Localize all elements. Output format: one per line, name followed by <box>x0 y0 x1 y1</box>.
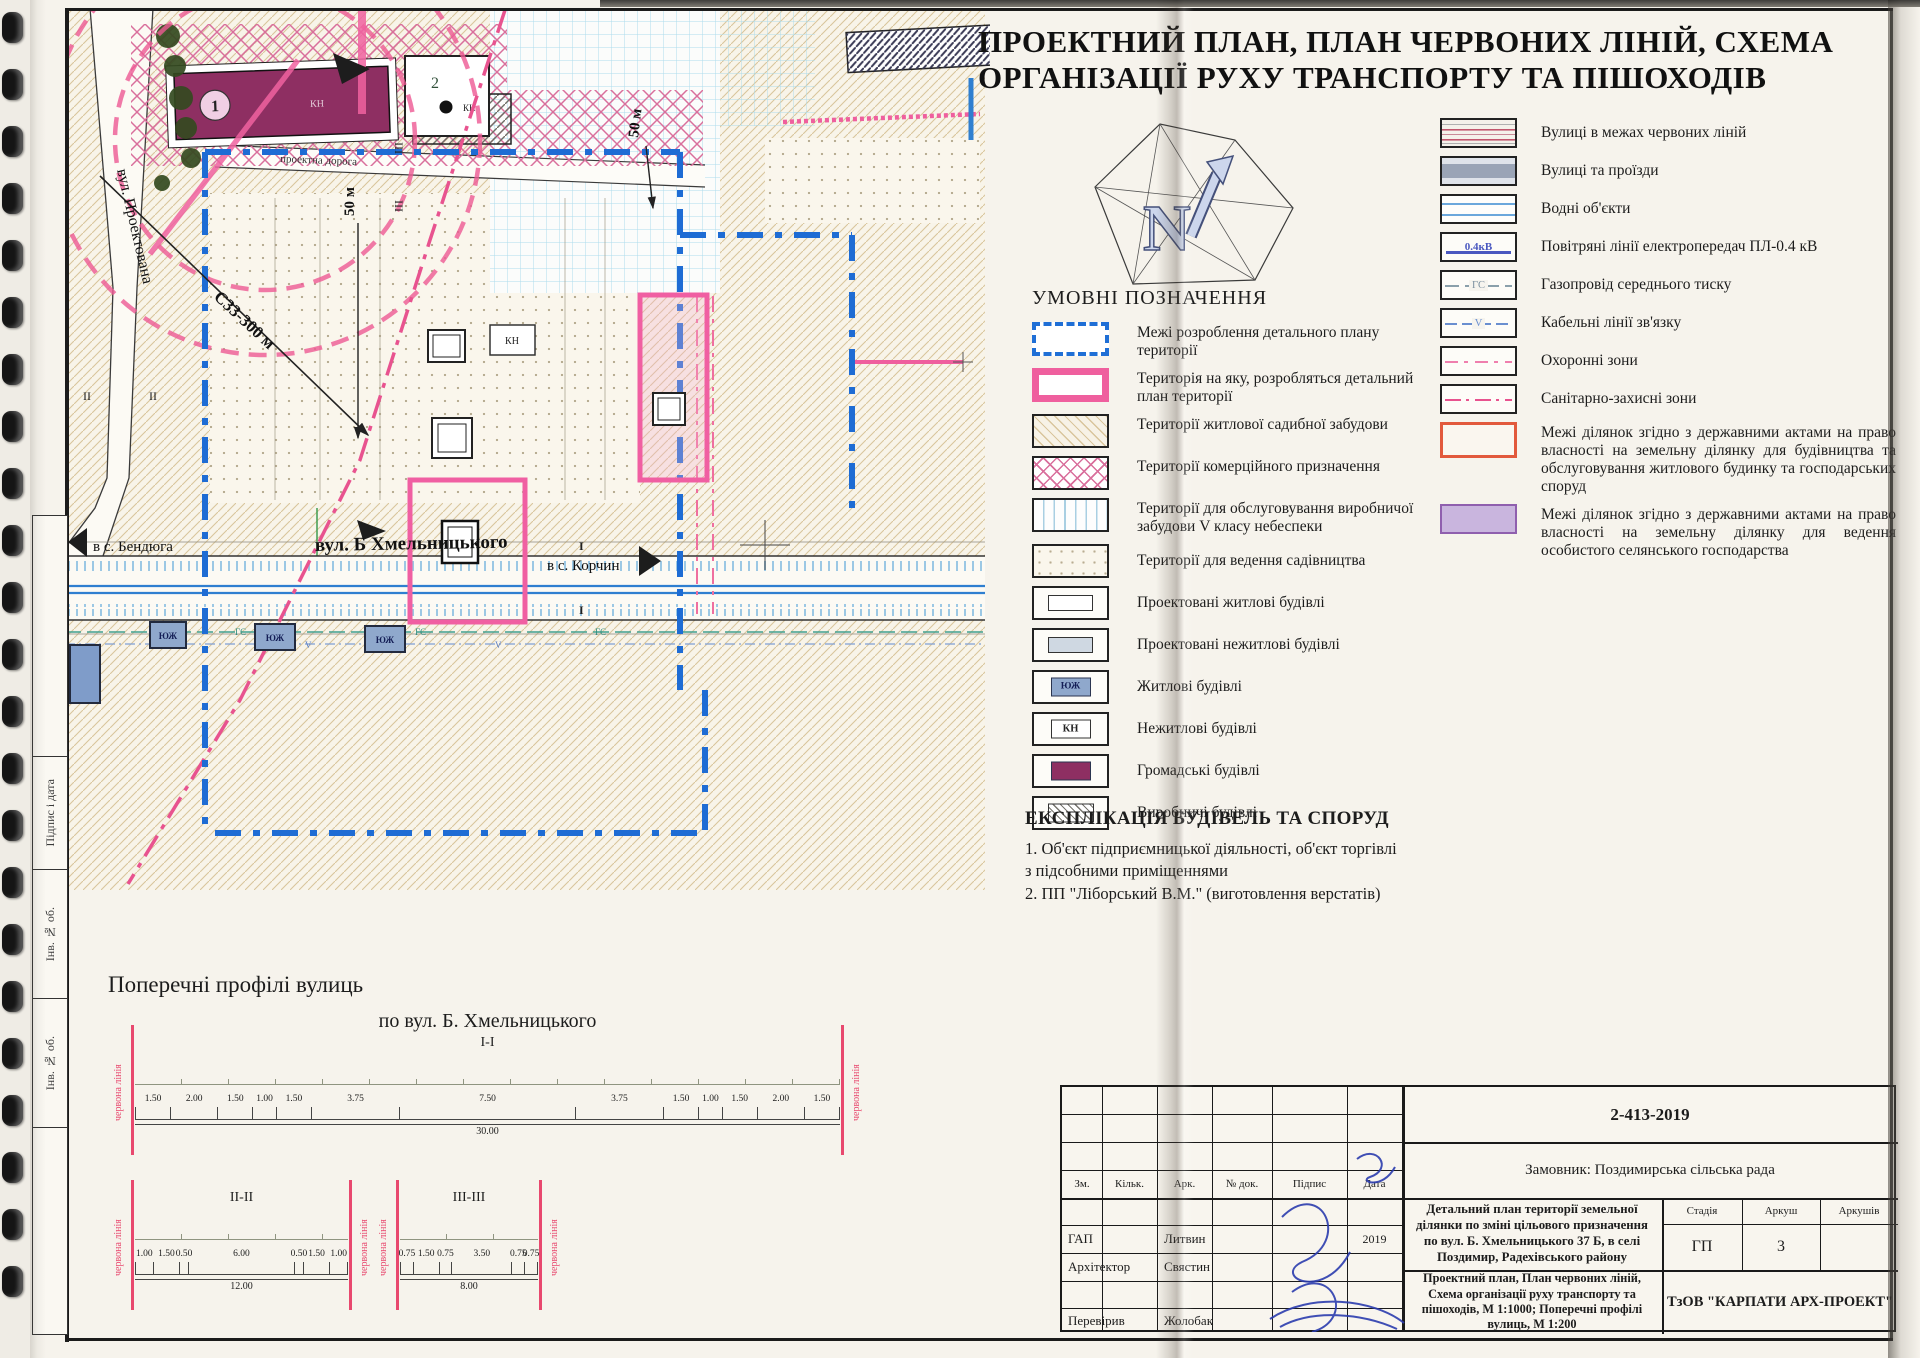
kn-building-label: КН <box>505 336 519 347</box>
water-swatch <box>1440 194 1517 224</box>
svg-text:III: III <box>392 142 406 154</box>
legend-item-nonresidential-buildings: КН Нежитлові будівлі <box>1032 712 1447 746</box>
spiral-loop <box>2 12 23 43</box>
red-line-mark <box>131 1025 134 1155</box>
red-line-mark <box>349 1180 352 1310</box>
spiral-loop <box>2 639 23 670</box>
legend-item-proposed-nonresidential: Проектовані нежитлові будівлі <box>1032 628 1447 662</box>
tb-sheets-value <box>1820 1224 1898 1270</box>
scanned-plan-sheet: { "colors": { "boundary_blue": "#1e6cd4"… <box>0 0 1920 1358</box>
residential-territory-swatch <box>1032 414 1109 448</box>
state-act-peasant-swatch <box>1440 504 1517 534</box>
dimension-segment: 3.75 <box>312 1107 400 1119</box>
frame-right <box>1890 8 1893 1341</box>
target-parcel-a <box>640 295 707 480</box>
svg-text:I: I <box>579 539 584 553</box>
svg-text:ГС: ГС <box>415 627 426 637</box>
dimension-segment: 0.50 <box>180 1262 189 1274</box>
total-dimension: 30.00 <box>135 1124 840 1141</box>
spiral-loop <box>2 753 23 784</box>
svg-text:в с. Корчин: в с. Корчин <box>547 558 619 574</box>
dimension-segment: 0.75 <box>512 1262 525 1274</box>
explication-block: ЕКСПЛІКАЦІЯ БУДІВЕЛЬ ТА СПОРУД 1. Об'єкт… <box>1025 808 1705 905</box>
tb-doc-number: 2-413-2019 <box>1402 1087 1898 1142</box>
legend-item-state-act-peasant: Межі ділянок згідно з державними актами … <box>1440 504 1905 560</box>
profile-section-II: II-II червона лінія червона лінія 1.001.… <box>135 1190 348 1296</box>
industrial-territory-swatch <box>1032 498 1109 532</box>
gas-swatch: ГС <box>1440 270 1517 300</box>
dimension-segment: 1.50 <box>277 1107 312 1119</box>
tb-company: ТзОВ "КАРПАТИ АРХ-ПРОЕКТ" <box>1662 1270 1898 1334</box>
spiral-loop <box>2 1038 23 1069</box>
dimension-chain: 1.502.001.501.001.503.757.503.751.501.00… <box>135 1107 840 1120</box>
red-line-label: червона лінія <box>113 1180 124 1276</box>
north-arrow-icon: N <box>1085 112 1305 297</box>
dimension-segment: 1.00 <box>136 1262 154 1274</box>
dimension-segment: 7.50 <box>400 1107 576 1119</box>
dimension-segment: 0.75 <box>440 1262 453 1274</box>
svg-text:ЮЖ: ЮЖ <box>376 635 395 645</box>
tb-col-kilk: Кільк. <box>1102 1170 1157 1198</box>
spiral-loop <box>2 354 23 385</box>
dimension-segment: 1.50 <box>154 1262 180 1274</box>
building-1-number: 1 <box>211 98 220 115</box>
powerline-swatch: 0.4кВ <box>1440 232 1517 262</box>
dimension-segment: 1.00 <box>699 1107 722 1119</box>
nonresidential-buildings-swatch: КН <box>1032 712 1109 746</box>
street-profiles: Поперечні профілі вулиць по вул. Б. Хмел… <box>100 972 910 1352</box>
legend-item-residential-territory: Території житлової садибної забудови <box>1032 414 1447 448</box>
explication-line: 1. Об'єкт підприємницької діяльності, об… <box>1025 838 1705 860</box>
svg-text:V: V <box>305 640 312 650</box>
scan-top-edge <box>600 0 1920 7</box>
tb-name: Жолобак <box>1158 1308 1268 1334</box>
spiral-loop <box>2 183 23 214</box>
tb-col-zm: Зм. <box>1062 1170 1102 1198</box>
dimension-segment: 1.50 <box>723 1107 758 1119</box>
svg-text:II: II <box>83 389 91 403</box>
legend-item-public-buildings: Громадські будівлі <box>1032 754 1447 788</box>
proposed-nonresidential-swatch <box>1032 628 1109 662</box>
spiral-loop <box>2 240 23 271</box>
spiral-binding <box>0 0 30 1358</box>
spiral-loop <box>2 468 23 499</box>
legend-left: УМОВНІ ПОЗНАЧЕННЯ Межі розроблення детал… <box>1032 287 1447 838</box>
site-plan-map: ГС ГС ГС V V 1 КН 2 КН <box>65 8 990 898</box>
spiral-loop <box>2 810 23 841</box>
tb-role: Перевірив <box>1064 1308 1156 1334</box>
main-street-label: вул. Б Хмельницького <box>315 532 508 556</box>
industrial-building <box>846 24 990 73</box>
dimension-segment: 1.50 <box>805 1107 840 1119</box>
target-territory-swatch <box>1032 368 1109 402</box>
spiral-loop <box>2 1095 23 1126</box>
tb-role: ГАП <box>1064 1225 1156 1253</box>
ground-line <box>135 1077 840 1085</box>
frame-top <box>65 8 1893 11</box>
dimension-segment: 1.50 <box>136 1107 171 1119</box>
svg-text:ЮЖ: ЮЖ <box>159 631 178 641</box>
commercial-territory-swatch <box>1032 456 1109 490</box>
dimension-segment: 1.50 <box>664 1107 699 1119</box>
red-line-mark <box>841 1025 844 1155</box>
dimension-segment: 1.50 <box>414 1262 440 1274</box>
svg-text:ГС: ГС <box>235 627 246 637</box>
dimension-segment: 2.00 <box>171 1107 218 1119</box>
svg-text:III: III <box>392 200 406 212</box>
dimension-segment: 0.75 <box>401 1262 414 1274</box>
dimension-segment: 0.75 <box>525 1262 538 1274</box>
spiral-loop <box>2 1266 23 1297</box>
tb-sheets-label: Аркушів <box>1820 1198 1898 1224</box>
legend-item-guard-zones: Охоронні зони <box>1440 346 1905 376</box>
legend-item-proposed-residential: Проектовані житлові будівлі <box>1032 586 1447 620</box>
profile-section-name: I-I <box>135 1035 840 1051</box>
dimension-segment: 1.00 <box>253 1107 276 1119</box>
spiral-loop <box>2 582 23 613</box>
dimension-chain: 0.751.500.753.500.750.75 <box>400 1262 538 1275</box>
red-line-label: червона лінія <box>359 1180 370 1276</box>
svg-text:в с. Бендюга: в с. Бендюга <box>93 539 173 555</box>
spiral-loop <box>2 867 23 898</box>
building-1-kn-label: КН <box>310 98 324 109</box>
tb-client: Замовник: Поздимирська сільська рада <box>1402 1142 1898 1198</box>
spiral-loop <box>2 411 23 442</box>
page-title-line1: ПРОЕКТНИЙ ПЛАН, ПЛАН ЧЕРВОНИХ ЛІНІЙ, СХЕ… <box>978 24 1898 60</box>
spiral-loop <box>2 981 23 1012</box>
legend-item-water: Водні об'єкти <box>1440 194 1905 224</box>
explication-title: ЕКСПЛІКАЦІЯ БУДІВЕЛЬ ТА СПОРУД <box>1025 808 1705 830</box>
ground-line <box>135 1232 348 1240</box>
residential-buildings-swatch: ЮЖ <box>1032 670 1109 704</box>
legend-right: Вулиці в межах червоних ліній Вулиці та … <box>1440 118 1905 568</box>
tb-name: Свястин <box>1158 1253 1268 1281</box>
svg-text:I: I <box>579 603 584 617</box>
tb-scheme-title: Проектний план, План червоних ліній, Схе… <box>1406 1270 1658 1334</box>
spiral-loop <box>2 1152 23 1183</box>
redline-streets-swatch <box>1440 118 1517 148</box>
tb-role: Архітектор <box>1064 1253 1156 1281</box>
dimension-segment: 6.00 <box>189 1262 295 1274</box>
tb-name: Литвин <box>1158 1225 1268 1253</box>
legend-item-cable: V Кабельні лінії зв'язку <box>1440 308 1905 338</box>
dimension-segment: 3.50 <box>452 1262 512 1274</box>
legend-item-redline-streets: Вулиці в межах червоних ліній <box>1440 118 1905 148</box>
svg-text:ГС: ГС <box>595 627 606 637</box>
dimension-chain: 1.001.500.506.000.501.501.00 <box>135 1262 348 1275</box>
streets-drives-swatch <box>1440 156 1517 186</box>
svg-text:V: V <box>495 640 502 650</box>
guard-zones-swatch <box>1440 346 1517 376</box>
dimension-segment: 0.50 <box>295 1262 304 1274</box>
title-block: Зм. Кільк. Арк. № док. Підпис Дата ГАП Л… <box>1060 1085 1896 1332</box>
tb-col-ark: Арк. <box>1157 1170 1212 1198</box>
legend-item-sanitary-zones: Санітарно-захисні зони <box>1440 384 1905 414</box>
sanitary-zones-swatch <box>1440 384 1517 414</box>
spiral-loop <box>2 126 23 157</box>
handwritten-signatures <box>1262 1147 1412 1332</box>
spiral-loop <box>2 696 23 727</box>
profile-section-III: III-III червона лінія червона лінія 0.75… <box>400 1190 538 1296</box>
red-line-label: червона лінія <box>549 1180 560 1276</box>
dimension-segment: 1.00 <box>330 1262 348 1274</box>
red-line-mark <box>131 1180 134 1310</box>
red-line-mark <box>539 1180 542 1310</box>
total-dimension: 8.00 <box>400 1279 538 1296</box>
profile-section-name: II-II <box>135 1190 348 1206</box>
profile-street-title: по вул. Б. Хмельницького <box>135 1010 840 1033</box>
proposed-residential-swatch <box>1032 586 1109 620</box>
dimension-segment: 1.50 <box>218 1107 253 1119</box>
profile-section-name: III-III <box>400 1190 538 1206</box>
red-line-label: червона лінія <box>378 1180 389 1276</box>
spiral-loop <box>2 924 23 955</box>
red-line-label: червона лінія <box>113 1025 124 1121</box>
tb-stage-label: Стадія <box>1662 1198 1742 1224</box>
explication-line: з підсобними приміщеннями <box>1025 860 1705 882</box>
frame-bottom <box>65 1338 1893 1341</box>
legend-item-gardening-territory: Території для ведення садівництва <box>1032 544 1447 578</box>
legend-item-powerline: 0.4кВ Повітряні лінії електропередач ПЛ-… <box>1440 232 1905 262</box>
tb-sheet-label: Аркуш <box>1742 1198 1820 1224</box>
legend-item-state-act-building: Межі ділянок згідно з державними актами … <box>1440 422 1905 496</box>
gardening-territory-swatch <box>1032 544 1109 578</box>
state-act-building-swatch <box>1440 422 1517 458</box>
legend-item-dpt-boundary: Межі розроблення детального плану терито… <box>1032 322 1447 360</box>
dpt-boundary-swatch <box>1032 322 1109 356</box>
page-title: ПРОЕКТНИЙ ПЛАН, ПЛАН ЧЕРВОНИХ ЛІНІЙ, СХЕ… <box>978 24 1898 95</box>
explication-line: 2. ПП "Ліборський В.М." (виготовлення ве… <box>1025 883 1705 905</box>
dimension-segment: 1.50 <box>304 1262 330 1274</box>
legend-item-industrial-territory: Території для обслуговування виробничої … <box>1032 498 1447 536</box>
red-line-mark <box>396 1180 399 1310</box>
public-buildings-swatch <box>1032 754 1109 788</box>
legend-item-residential-buildings: ЮЖ Житлові будівлі <box>1032 670 1447 704</box>
profile-section-I: по вул. Б. Хмельницького I-I червона лін… <box>135 1010 840 1141</box>
legend-item-streets-drives: Вулиці та проїзди <box>1440 156 1905 186</box>
page-title-line2: ОРГАНІЗАЦІЇ РУХУ ТРАНСПОРТУ ТА ПІШОХОДІВ <box>978 60 1898 96</box>
svg-text:II: II <box>149 389 157 403</box>
building-2-number: 2 <box>431 75 439 92</box>
svg-text:N: N <box>1143 192 1191 265</box>
total-dimension: 12.00 <box>135 1279 348 1296</box>
legend-item-commercial-territory: Території комерційного призначення <box>1032 456 1447 490</box>
dimension-segment: 2.00 <box>758 1107 805 1119</box>
tb-sheet-value: 3 <box>1742 1224 1820 1270</box>
svg-text:ЮЖ: ЮЖ <box>266 633 285 643</box>
ground-line <box>400 1232 538 1240</box>
profiles-title: Поперечні профілі вулиць <box>108 972 910 998</box>
legend-title: УМОВНІ ПОЗНАЧЕННЯ <box>1032 287 1447 310</box>
spiral-loop <box>2 69 23 100</box>
cable-swatch: V <box>1440 308 1517 338</box>
dimension-segment: 3.75 <box>576 1107 664 1119</box>
spiral-loop <box>2 297 23 328</box>
tb-stage-value: ГП <box>1662 1224 1742 1270</box>
red-line-label: червона лінія <box>851 1025 862 1121</box>
spiral-loop <box>2 1209 23 1240</box>
svg-text:50 м: 50 м <box>342 187 358 216</box>
spiral-loop <box>2 525 23 556</box>
tb-project-title: Детальний план території земельної ділян… <box>1406 1198 1658 1270</box>
legend-item-target-territory: Територія на яку, розробляться детальний… <box>1032 368 1447 406</box>
legend-item-gas: ГС Газопровід середнього тиску <box>1440 270 1905 300</box>
